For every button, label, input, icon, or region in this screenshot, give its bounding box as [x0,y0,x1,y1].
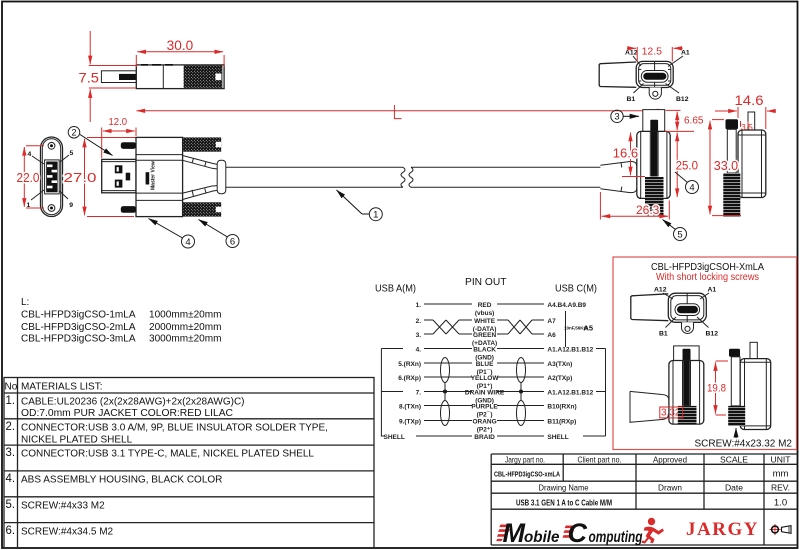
svg-text:PIN OUT: PIN OUT [465,277,507,288]
svg-text:B1: B1 [659,331,668,338]
svg-text:ABS ASSEMBLY HOUSING, BLACK CO: ABS ASSEMBLY HOUSING, BLACK COLOR [21,475,222,486]
svg-text:BRAID: BRAID [474,434,495,441]
svg-text:A3(TXn): A3(TXn) [547,361,572,368]
svg-text:CBL-HFPD3igCSO-xmLA: CBL-HFPD3igCSO-xmLA [494,469,560,478]
svg-text:27.0: 27.0 [64,170,97,185]
svg-text:M: M [503,518,526,548]
svg-text:A1: A1 [708,287,717,294]
svg-text:5: 5 [70,150,74,157]
svg-text:19.8: 19.8 [707,383,726,395]
svg-text:A4.B4.A9.B9: A4.B4.A9.B9 [547,302,586,309]
svg-text:4: 4 [185,237,190,248]
svg-text:(P2⁺): (P2⁺) [477,427,493,434]
svg-text:mm: mm [773,469,789,480]
svg-text:7.: 7. [416,390,422,397]
svg-text:OD:7.0mm PUR JACKET COLOR:RED: OD:7.0mm PUR JACKET COLOR:RED LILAC [21,408,233,419]
svg-text:16.6: 16.6 [613,146,638,161]
svg-text:A1: A1 [681,50,690,57]
svg-text:CBL-HFPD3igCSO-1mLA: CBL-HFPD3igCSO-1mLA [21,310,136,321]
svg-text:Jargy part no.: Jargy part no. [505,455,545,464]
svg-text:SHELL: SHELL [547,434,568,441]
svg-text:25.0: 25.0 [676,161,698,173]
svg-text:4.: 4. [6,473,16,485]
svg-text:5.(RXn): 5.(RXn) [398,361,421,368]
svg-text:CABLE:UL20236 (2x(2x28AWG)+2x(: CABLE:UL20236 (2x(2x28AWG)+2x(2x28AWG)C) [21,397,245,408]
svg-text:7.5: 7.5 [79,70,100,86]
svg-text:omputing: omputing [589,529,643,546]
svg-text:5.: 5. [6,499,16,511]
svg-text:26.3: 26.3 [636,203,660,217]
svg-text:Master View: Master View [151,161,157,190]
svg-text:1.: 1. [416,302,422,309]
svg-text:CONNECTOR:USB 3.1 TYPE-C, MALE: CONNECTOR:USB 3.1 TYPE-C, MALE, NICKEL P… [21,449,314,460]
svg-text:A7: A7 [547,318,556,325]
svg-text:A6: A6 [547,332,556,339]
svg-text:SCALE: SCALE [720,455,749,464]
svg-text:A12: A12 [625,50,638,57]
svg-text:B11(RXp): B11(RXp) [547,419,576,426]
svg-text:CONNECTOR:USB 3.0 A/M, 9P, BLU: CONNECTOR:USB 3.0 A/M, 9P, BLUE INSULATO… [21,423,328,434]
svg-text:Client part no.: Client part no. [578,455,622,464]
svg-text:CBL-HFPD3igCSO-3mLA: CBL-HFPD3igCSO-3mLA [21,334,136,345]
svg-text:33.0: 33.0 [714,159,738,173]
svg-text:4: 4 [689,183,694,194]
svg-text:2000mm±20mm: 2000mm±20mm [149,322,222,333]
svg-text:A1.A12.B1.B12: A1.A12.B1.B12 [547,347,593,354]
svg-text:UNIT: UNIT [771,455,791,464]
svg-text:14.6: 14.6 [735,93,764,108]
svg-text:5: 5 [677,230,682,241]
svg-text:Drawn: Drawn [658,484,682,493]
svg-text:22.0: 22.0 [17,171,40,185]
svg-text:A12: A12 [654,287,667,294]
svg-text:NICKEL PLATED SHELL: NICKEL PLATED SHELL [21,435,133,446]
svg-text:2: 2 [71,128,76,138]
svg-text:6.(RXp): 6.(RXp) [398,375,421,382]
svg-text:12.0: 12.0 [109,117,128,128]
svg-text:3.: 3. [416,332,422,339]
svg-text:SCREW:#4x34.5 M2: SCREW:#4x34.5 M2 [21,527,113,538]
svg-text:6.: 6. [6,525,16,537]
svg-text:A1.A12.B1.B12: A1.A12.B1.B12 [547,390,593,397]
svg-text:Approved: Approved [653,455,687,464]
svg-text:L:: L: [21,297,29,308]
svg-text:3.: 3. [6,447,16,459]
svg-text:MATERIALS LIST:: MATERIALS LIST: [21,382,103,393]
svg-text:No: No [5,382,18,393]
svg-text:REV.: REV. [771,484,790,493]
svg-text:WHITE: WHITE [474,318,496,325]
svg-text:ORANG: ORANG [472,419,496,426]
svg-text:9: 9 [69,202,73,209]
svg-text:With short locking screws: With short locking screws [656,271,759,283]
svg-text:1000mm±20mm: 1000mm±20mm [149,310,222,321]
svg-text:(vbus): (vbus) [475,310,495,317]
svg-text:DRAIN WIRE: DRAIN WIRE [465,390,505,397]
svg-text:SCREW:#4x23.32 M2: SCREW:#4x23.32 M2 [695,438,793,450]
svg-text:CBL-HFPD3igCSO-2mLA: CBL-HFPD3igCSO-2mLA [21,322,136,333]
svg-text:Drawing Name: Drawing Name [539,484,589,493]
svg-text:BLACK: BLACK [473,347,496,354]
svg-text:A5: A5 [584,324,594,333]
svg-text:2.: 2. [416,318,422,325]
svg-text:1.0: 1.0 [774,498,787,509]
svg-text:GREEN: GREEN [473,332,496,339]
svg-text:YELLOW: YELLOW [471,375,500,382]
svg-text:USB 3.1 GEN 1 A to C Cable M/M: USB 3.1 GEN 1 A to C Cable M/M [516,497,612,507]
svg-text:B12: B12 [706,331,719,338]
svg-text:4: 4 [28,151,32,158]
svg-text:3000mm±20mm: 3000mm±20mm [149,334,222,345]
svg-text:9.(TXp): 9.(TXp) [399,419,421,426]
svg-text:B1: B1 [627,96,636,103]
svg-text:JARGY: JARGY [686,519,759,540]
svg-text:6.65: 6.65 [684,116,704,127]
svg-text:A2(TXp): A2(TXp) [547,375,572,382]
svg-text:USB C(M): USB C(M) [555,284,597,295]
svg-text:3.5: 3.5 [741,122,753,132]
svg-text:8.(TXn): 8.(TXn) [399,404,421,411]
svg-text:USB A(M): USB A(M) [375,284,416,295]
svg-text:6: 6 [230,237,235,248]
svg-text:12.5: 12.5 [642,46,663,58]
svg-text:B10(RXn): B10(RXn) [547,404,576,411]
svg-text:2.: 2. [6,421,16,433]
svg-text:1: 1 [373,210,378,221]
svg-text:C: C [568,518,588,548]
svg-text:Date: Date [725,484,743,493]
svg-text:obile: obile [524,529,560,546]
svg-text:(P2¯): (P2¯) [477,411,493,419]
svg-text:3: 3 [614,112,619,123]
svg-text:BLUE: BLUE [476,361,494,368]
svg-text:PURPLE: PURPLE [471,404,498,411]
svg-text:30.0: 30.0 [167,38,194,53]
svg-text:4.: 4. [416,347,422,354]
svg-text:SHELL: SHELL [384,434,405,441]
svg-text:RED: RED [478,302,492,309]
svg-text:SCREW:#4x33 M2: SCREW:#4x33 M2 [21,501,105,512]
svg-text:B12: B12 [676,96,689,103]
svg-text:1.: 1. [6,395,16,407]
